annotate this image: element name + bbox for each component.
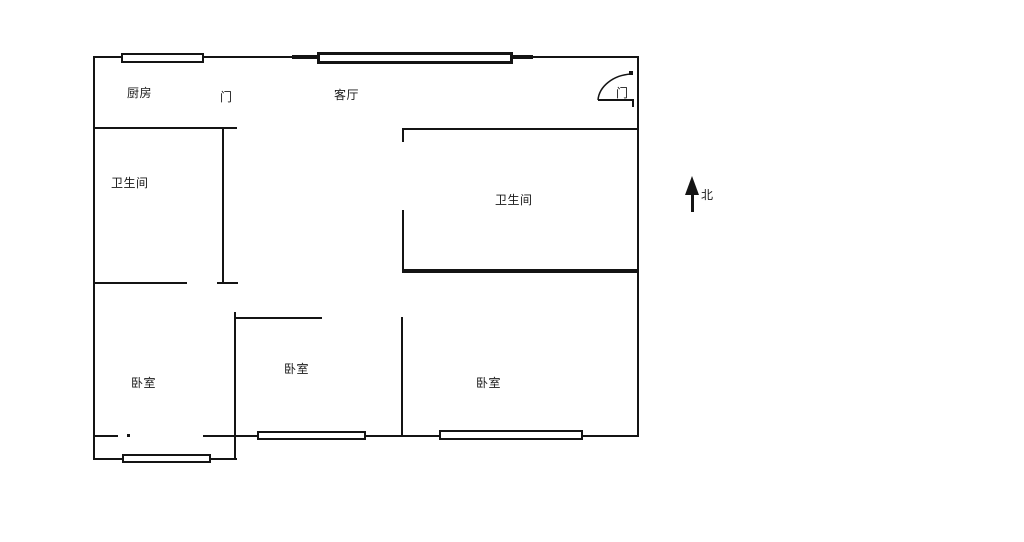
- bathroom-left-label: 卫生间: [111, 177, 149, 189]
- living-room-label: 客厅: [334, 89, 359, 101]
- left-bathroom-right-wall: [222, 127, 224, 284]
- center-bathroom-door-jamb: [402, 128, 404, 142]
- entry-door-arc: [555, 48, 645, 118]
- kitchen-bottom-wall: [94, 127, 237, 129]
- center-bathroom-top-wall: [402, 128, 639, 130]
- north-arrow-shaft: [691, 192, 694, 212]
- window-living-stub-right: [512, 55, 533, 59]
- middle-bedroom-left-wall: [234, 312, 236, 460]
- bedroom-left-label: 卧室: [131, 377, 156, 389]
- left-wall: [93, 56, 95, 460]
- window-middle-bedroom: [257, 431, 366, 440]
- bedroom-middle-label: 卧室: [284, 363, 309, 375]
- bedroom-divider-wall: [401, 317, 403, 437]
- window-living-room: [317, 52, 513, 64]
- window-living-stub-left: [292, 55, 318, 59]
- kitchen-label: 厨房: [127, 87, 152, 99]
- kitchen-door-label: 门: [220, 91, 233, 103]
- left-bathroom-bottom-wall: [94, 282, 187, 284]
- window-kitchen: [121, 53, 204, 63]
- window-right-bedroom: [439, 430, 583, 440]
- window-balcony: [122, 454, 211, 463]
- bottom-wall-door-mark: [127, 434, 130, 437]
- middle-bedroom-top-wall: [234, 317, 322, 319]
- bathroom-center-label: 卫生间: [495, 194, 533, 206]
- center-bathroom-left-wall: [402, 210, 404, 272]
- north-label: 北: [701, 189, 714, 201]
- center-bathroom-bottom-wall: [402, 269, 639, 273]
- bottom-wall-left-stub: [94, 435, 118, 437]
- bedroom-right-label: 卧室: [476, 377, 501, 389]
- floorplan-canvas: 厨房门客厅卫生间卫生间卧室卧室卧室门北: [0, 0, 1024, 542]
- entry-door-label: 门: [616, 87, 629, 99]
- left-bathroom-bottom-cap: [217, 282, 238, 284]
